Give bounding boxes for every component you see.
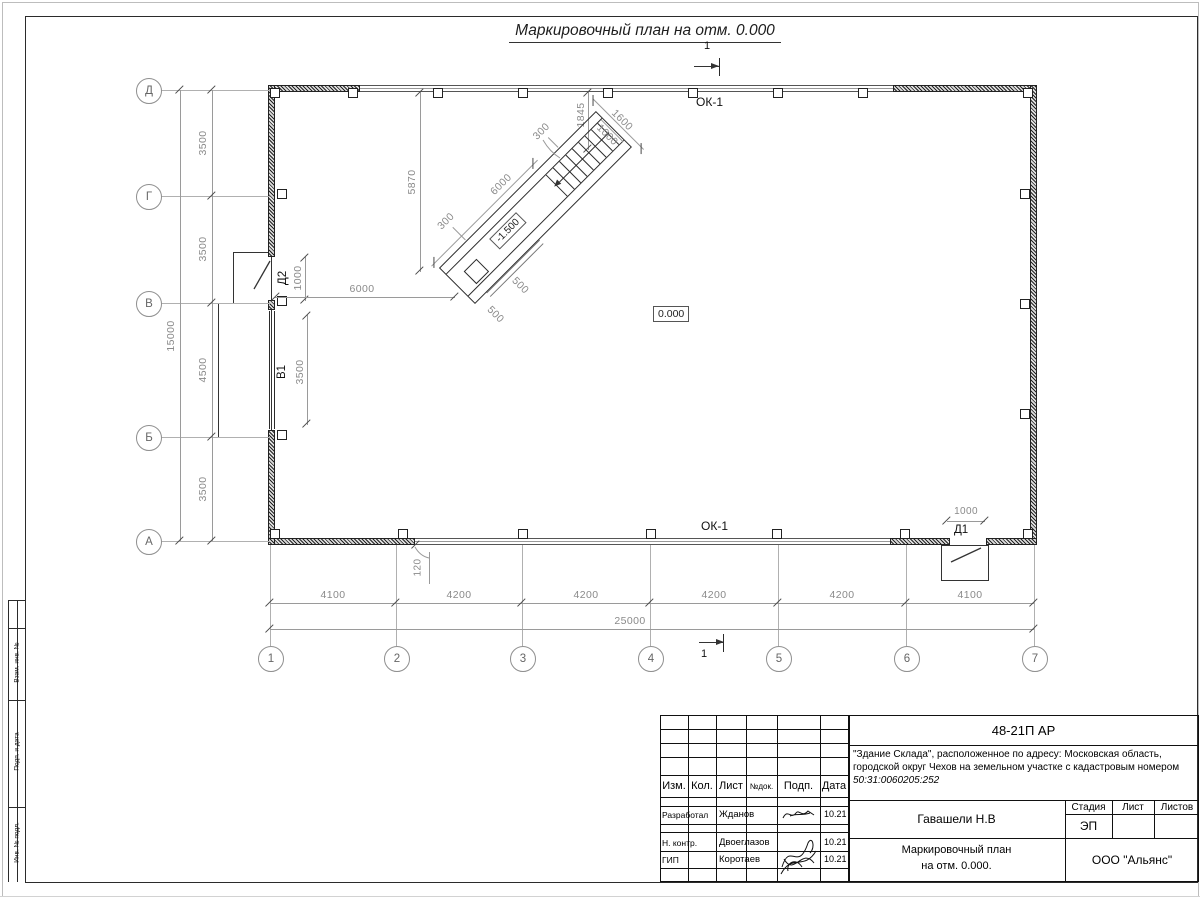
tb-line	[660, 729, 848, 730]
tb-line	[820, 715, 821, 882]
stage-value: ЭП	[1065, 814, 1112, 838]
gate-v1-label: В1	[276, 342, 288, 402]
section-bar-top	[719, 58, 720, 76]
row1-role: Разработал	[662, 810, 708, 820]
side-stamp-label-inv: Инв. № подл.	[14, 793, 21, 893]
row2-role: Н. контр.	[662, 838, 697, 848]
tb-line	[660, 797, 848, 798]
dim-row-3: 3500	[197, 459, 209, 519]
axis-col-6: 6	[894, 646, 920, 672]
dim-d2-line	[305, 257, 306, 301]
company-name: ООО "Альянс"	[1065, 838, 1199, 882]
tb-line	[660, 757, 848, 758]
axis-row-g: Г	[136, 184, 162, 210]
ramp-level-mark: -1.500	[489, 212, 527, 250]
dim-tick	[641, 143, 642, 154]
sheet-name-line2: на отм. 0.000.	[921, 860, 991, 872]
dim-tick	[532, 158, 533, 169]
side-stamp-line	[8, 600, 25, 601]
column-mark	[398, 529, 408, 539]
axis-line-row	[160, 303, 270, 304]
wall-top-left	[268, 85, 360, 92]
column-mark	[348, 88, 358, 98]
window-label-bottom: ОК-1	[701, 519, 728, 533]
column-mark	[646, 529, 656, 539]
column-mark	[773, 88, 783, 98]
dim-row-total: 15000	[165, 306, 177, 366]
dim-tick	[433, 257, 434, 268]
column-mark	[270, 529, 280, 539]
dim-row-0: 3500	[197, 113, 209, 173]
level-zero-mark: 0.000	[653, 306, 689, 322]
doc-number: 48-21П АР	[848, 715, 1199, 745]
project-description: "Здание Склада", расположенное по адресу…	[853, 748, 1195, 788]
sheet-title: Маркировочный план на отм. 0.000	[420, 22, 870, 43]
dim-5870-line	[420, 92, 421, 272]
dim-col-1: 4200	[429, 589, 489, 601]
wall-bottom-mid	[890, 538, 950, 545]
tb-line	[660, 806, 848, 807]
axis-line-col	[1034, 545, 1035, 646]
porch-d1	[941, 545, 989, 581]
col-header-podp: Подп.	[777, 775, 820, 797]
axis-line-col	[396, 545, 397, 646]
list-label: Лист	[1112, 800, 1154, 814]
dim-row-chain-line	[212, 90, 213, 541]
author-name: Гавашели Н.В	[848, 800, 1065, 838]
tb-line	[716, 715, 717, 882]
wall-left-bottom	[268, 430, 275, 545]
dim-row-total-line	[180, 90, 181, 541]
dim-v1-line	[307, 315, 308, 425]
dim-v1-width: 3500	[294, 342, 306, 402]
dim-col-2: 4200	[556, 589, 616, 601]
tb-line	[660, 832, 848, 833]
column-mark	[277, 430, 287, 440]
row2-name: Двоеглазов	[719, 837, 770, 848]
frame-bottom	[25, 882, 1198, 883]
side-stamp-label-vzam: Взам. инв. №	[14, 613, 21, 713]
tb-line	[688, 715, 689, 882]
wall-right	[1030, 85, 1037, 545]
column-mark	[518, 88, 528, 98]
tb-line	[660, 743, 848, 744]
side-stamp-label-podp: Подп. и дата	[14, 702, 21, 802]
tb-line	[660, 824, 848, 825]
side-stamp-border	[8, 600, 9, 882]
dim-col-0: 4100	[303, 589, 363, 601]
dim-col-chain-line	[270, 603, 1034, 604]
row1-name: Жданов	[719, 809, 754, 820]
axis-line-col	[906, 545, 907, 646]
axis-row-a: А	[136, 529, 162, 555]
column-mark	[1020, 409, 1030, 419]
row1-date: 10.21	[824, 809, 847, 819]
dim-window-offset: 120	[413, 538, 424, 598]
dim-top-to-ramp: 5870	[406, 152, 418, 212]
row2-date: 10.21	[824, 837, 847, 847]
axis-col-1: 1	[258, 646, 284, 672]
dim-col-3: 4200	[684, 589, 744, 601]
axis-row-v: В	[136, 291, 162, 317]
section-bar-bottom	[723, 634, 724, 652]
axis-col-7: 7	[1022, 646, 1048, 672]
gate-v1-leaf	[269, 311, 270, 429]
col-header-list: Лист	[716, 775, 746, 797]
axis-line-col	[650, 545, 651, 646]
listov-label: Листов	[1154, 800, 1200, 814]
column-mark	[270, 88, 280, 98]
ramp-pit	[464, 259, 489, 284]
axis-line-row	[160, 437, 270, 438]
sheet-title-text: Маркировочный план на отм. 0.000	[509, 22, 781, 43]
axis-line-col	[522, 545, 523, 646]
dim-d1-line	[947, 521, 985, 522]
row3-role: ГИП	[662, 855, 679, 865]
door-d2-label: Д2	[277, 248, 289, 308]
dim-wall-to-ramp-line	[275, 297, 455, 298]
sheet-name-line1: Маркировочный план	[902, 844, 1012, 856]
col-header-kol: Кол.	[688, 775, 716, 797]
dim-wall-to-ramp: 6000	[332, 283, 392, 295]
row3-name: Коротаев	[719, 854, 760, 865]
dim-120-shelf	[429, 552, 430, 584]
project-description-text: "Здание Склада", расположенное по адресу…	[853, 749, 1179, 773]
dim-col-total: 25000	[600, 615, 660, 627]
axis-line-row	[160, 196, 270, 197]
column-mark	[433, 88, 443, 98]
column-mark	[858, 88, 868, 98]
axis-line-col	[778, 545, 779, 646]
dim-row-1: 3500	[197, 219, 209, 279]
axis-col-2: 2	[384, 646, 410, 672]
column-mark	[1023, 529, 1033, 539]
wall-bottom-right	[986, 538, 1037, 545]
tb-line	[848, 745, 1199, 746]
dim-col-4: 4200	[812, 589, 872, 601]
tb-line	[660, 851, 848, 852]
section-arrow-top	[711, 63, 719, 69]
window-label-top: ОК-1	[696, 95, 723, 109]
column-mark	[772, 529, 782, 539]
porch-d2	[233, 252, 272, 304]
column-mark	[277, 189, 287, 199]
porch-v1	[218, 303, 272, 438]
axis-col-5: 5	[766, 646, 792, 672]
dim-col-5: 4100	[940, 589, 1000, 601]
section-mark-top-label: 1	[704, 40, 710, 52]
sheet-name: Маркировочный план на отм. 0.000.	[848, 843, 1065, 875]
frame-left	[25, 16, 26, 882]
wall-bottom-left	[268, 538, 415, 545]
column-mark	[518, 529, 528, 539]
col-header-izm: Изм.	[660, 775, 688, 797]
col-header-data: Дата	[820, 775, 848, 797]
wall-left-top	[268, 85, 275, 257]
door-d1-label: Д1	[954, 524, 968, 536]
frame-top	[25, 16, 1198, 17]
section-mark-bottom-label: 1	[701, 648, 707, 660]
stage-label: Стадия	[1065, 800, 1112, 814]
axis-row-b: Б	[136, 425, 162, 451]
column-mark	[1020, 189, 1030, 199]
cadastre-number: 50:31:0060205:252	[853, 775, 939, 786]
tb-line	[660, 868, 848, 869]
tb-line	[777, 715, 778, 882]
gate-v1-leaf	[274, 311, 275, 429]
wall-top-right	[893, 85, 1037, 92]
column-mark	[1023, 88, 1033, 98]
column-mark	[900, 529, 910, 539]
axis-line-col	[270, 545, 271, 646]
axis-row-d: Д	[136, 78, 162, 104]
axis-col-4: 4	[638, 646, 664, 672]
dim-d2-width: 1000	[292, 248, 304, 308]
wall-left-pier	[268, 300, 275, 310]
page-edge-line	[0, 896, 1200, 897]
window-band-bottom	[415, 538, 890, 545]
drawing-sheet: Взам. инв. № Подп. и дата Инв. № подл. М…	[0, 0, 1200, 900]
dim-tick	[593, 95, 594, 106]
column-mark	[1020, 299, 1030, 309]
dim-row-2: 4500	[197, 340, 209, 400]
dim-col-total-line	[270, 629, 1034, 630]
row3-date: 10.21	[824, 854, 847, 864]
axis-col-3: 3	[510, 646, 536, 672]
col-header-ndok: №док.	[746, 775, 777, 797]
